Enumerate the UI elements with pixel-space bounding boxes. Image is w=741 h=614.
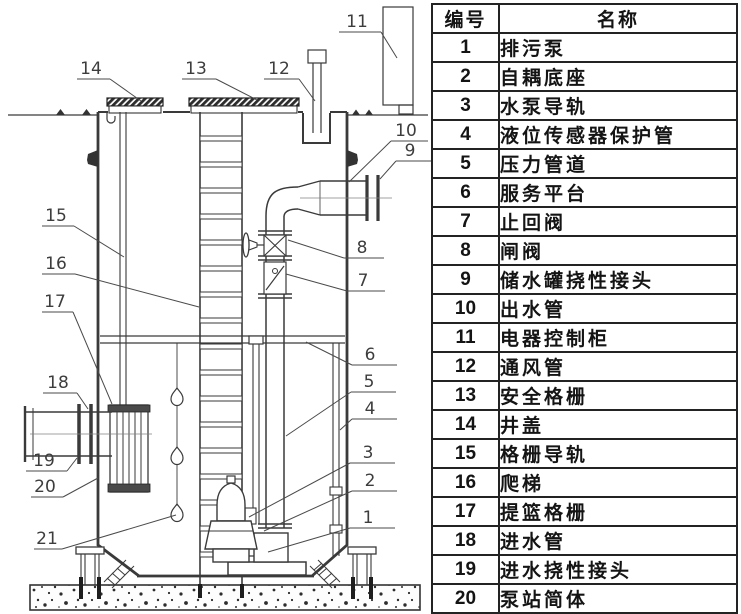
part-name: 储水罐挠性接头 bbox=[499, 265, 737, 294]
table-row: 5压力管道 bbox=[432, 149, 737, 178]
table-row: 9储水罐挠性接头 bbox=[432, 265, 737, 294]
part-name: 水泵导轨 bbox=[499, 91, 737, 120]
safety-grille-cover bbox=[189, 98, 299, 113]
well-cover bbox=[107, 98, 163, 113]
part-number: 12 bbox=[432, 352, 499, 381]
callout-label-8: 8 bbox=[357, 238, 368, 258]
table-row: 4液位传感器保护管 bbox=[432, 120, 737, 149]
part-name: 压力管道 bbox=[499, 149, 737, 178]
concrete-base bbox=[30, 585, 420, 610]
gate-valve bbox=[243, 233, 286, 257]
part-name: 格栅导轨 bbox=[499, 439, 737, 468]
callout-leader-7 bbox=[286, 274, 347, 291]
pump-guide-rail bbox=[249, 336, 263, 524]
callout-label-18: 18 bbox=[47, 373, 69, 393]
parts-table: 编号 名称 1排污泵2自耦底座3水泵导轨4液位传感器保护管5压力管道6服务平台7… bbox=[431, 3, 738, 614]
part-number: 11 bbox=[432, 323, 499, 352]
part-name: 出水管 bbox=[499, 294, 737, 323]
part-number: 3 bbox=[432, 91, 499, 120]
callout-label-11: 11 bbox=[346, 12, 368, 32]
callout-label-7: 7 bbox=[358, 271, 369, 291]
callout-leader-6 bbox=[306, 342, 352, 365]
table-row: 6服务平台 bbox=[432, 178, 737, 207]
table-row: 1排污泵 bbox=[432, 33, 737, 62]
callout-label-19: 19 bbox=[33, 451, 55, 471]
table-row: 2自耦底座 bbox=[432, 62, 737, 91]
parts-table-body: 1排污泵2自耦底座3水泵导轨4液位传感器保护管5压力管道6服务平台7止回阀8闸阀… bbox=[432, 33, 737, 614]
callout-label-1: 1 bbox=[363, 508, 374, 528]
part-number: 19 bbox=[432, 555, 499, 584]
part-number: 6 bbox=[432, 178, 499, 207]
check-valve bbox=[264, 262, 286, 294]
callout-leader-20 bbox=[63, 478, 98, 497]
table-row: 14井盖 bbox=[432, 410, 737, 439]
part-name: 安全格栅 bbox=[499, 381, 737, 410]
table-row: 3水泵导轨 bbox=[432, 91, 737, 120]
callout-leader-16 bbox=[75, 274, 199, 307]
part-name: 井盖 bbox=[499, 410, 737, 439]
header-number: 编号 bbox=[432, 4, 499, 33]
callout-label-9: 9 bbox=[405, 141, 416, 161]
pump-station-diagram: 123456789101112131415161718192021 bbox=[0, 0, 432, 614]
part-number: 17 bbox=[432, 497, 499, 526]
part-number: 1 bbox=[432, 33, 499, 62]
part-number: 13 bbox=[432, 381, 499, 410]
sewage-pump bbox=[205, 476, 257, 562]
table-row: 15格栅导轨 bbox=[432, 439, 737, 468]
wall-bracket-right bbox=[347, 150, 358, 167]
callout-label-15: 15 bbox=[45, 206, 67, 226]
vent-pipe bbox=[303, 50, 330, 143]
part-number: 2 bbox=[432, 62, 499, 91]
part-name: 爬梯 bbox=[499, 468, 737, 497]
diagram-callouts: 123456789101112131415161718192021 bbox=[26, 12, 432, 552]
callout-label-20: 20 bbox=[34, 477, 56, 497]
part-number: 16 bbox=[432, 468, 499, 497]
table-row: 20泵站简体 bbox=[432, 584, 737, 613]
callout-leader-17 bbox=[73, 312, 112, 404]
control-cabinet bbox=[383, 7, 413, 114]
table-row: 8闸阀 bbox=[432, 236, 737, 265]
table-row: 11电器控制柜 bbox=[432, 323, 737, 352]
callout-label-2: 2 bbox=[365, 471, 376, 491]
callout-leader-9 bbox=[380, 161, 396, 179]
part-name: 闸阀 bbox=[499, 236, 737, 265]
table-row: 13安全格栅 bbox=[432, 381, 737, 410]
part-name: 进水挠性接头 bbox=[499, 555, 737, 584]
callout-label-16: 16 bbox=[45, 254, 67, 274]
wall-bracket-left bbox=[87, 150, 98, 167]
part-number: 9 bbox=[432, 265, 499, 294]
sensor-protection-pipe bbox=[330, 343, 342, 556]
header-name: 名称 bbox=[499, 4, 737, 33]
callout-label-21: 21 bbox=[36, 529, 58, 549]
part-name: 液位传感器保护管 bbox=[499, 120, 737, 149]
table-row: 7止回阀 bbox=[432, 207, 737, 236]
part-name: 止回阀 bbox=[499, 207, 737, 236]
table-row: 16爬梯 bbox=[432, 468, 737, 497]
basket-screen bbox=[108, 405, 150, 492]
part-number: 18 bbox=[432, 526, 499, 555]
part-number: 4 bbox=[432, 120, 499, 149]
callout-label-3: 3 bbox=[363, 443, 374, 463]
pump-station-figure: 123456789101112131415161718192021 编号 名称 … bbox=[0, 0, 741, 614]
part-name: 进水管 bbox=[499, 526, 737, 555]
part-number: 14 bbox=[432, 410, 499, 439]
table-row: 10出水管 bbox=[432, 294, 737, 323]
float-balls bbox=[171, 343, 183, 522]
part-name: 电器控制柜 bbox=[499, 323, 737, 352]
callout-label-6: 6 bbox=[365, 345, 376, 365]
part-number: 15 bbox=[432, 439, 499, 468]
table-row: 12通风管 bbox=[432, 352, 737, 381]
callout-label-13: 13 bbox=[185, 59, 207, 79]
part-name: 服务平台 bbox=[499, 178, 737, 207]
callout-label-4: 4 bbox=[365, 399, 376, 419]
part-name: 通风管 bbox=[499, 352, 737, 381]
callout-leader-21 bbox=[62, 515, 176, 549]
callout-label-14: 14 bbox=[80, 59, 102, 79]
callout-label-17: 17 bbox=[44, 292, 66, 312]
part-number: 7 bbox=[432, 207, 499, 236]
part-name: 泵站简体 bbox=[499, 584, 737, 613]
part-number: 8 bbox=[432, 236, 499, 265]
table-row: 19进水挠性接头 bbox=[432, 555, 737, 584]
callout-leader-19 bbox=[67, 458, 77, 471]
part-name: 提篮格栅 bbox=[499, 497, 737, 526]
part-number: 5 bbox=[432, 149, 499, 178]
callout-label-10: 10 bbox=[395, 121, 417, 141]
service-platform bbox=[100, 336, 345, 343]
part-name: 自耦底座 bbox=[499, 62, 737, 91]
callout-leader-8 bbox=[288, 240, 344, 258]
table-row: 17提篮格栅 bbox=[432, 497, 737, 526]
table-row: 18进水管 bbox=[432, 526, 737, 555]
part-name: 排污泵 bbox=[499, 33, 737, 62]
grille-guide-rail bbox=[120, 112, 126, 405]
callout-label-5: 5 bbox=[364, 372, 375, 392]
part-number: 20 bbox=[432, 584, 499, 613]
parts-table-header-row: 编号 名称 bbox=[432, 4, 737, 33]
callout-label-12: 12 bbox=[268, 59, 290, 79]
part-number: 10 bbox=[432, 294, 499, 323]
callout-leader-13 bbox=[216, 79, 257, 100]
